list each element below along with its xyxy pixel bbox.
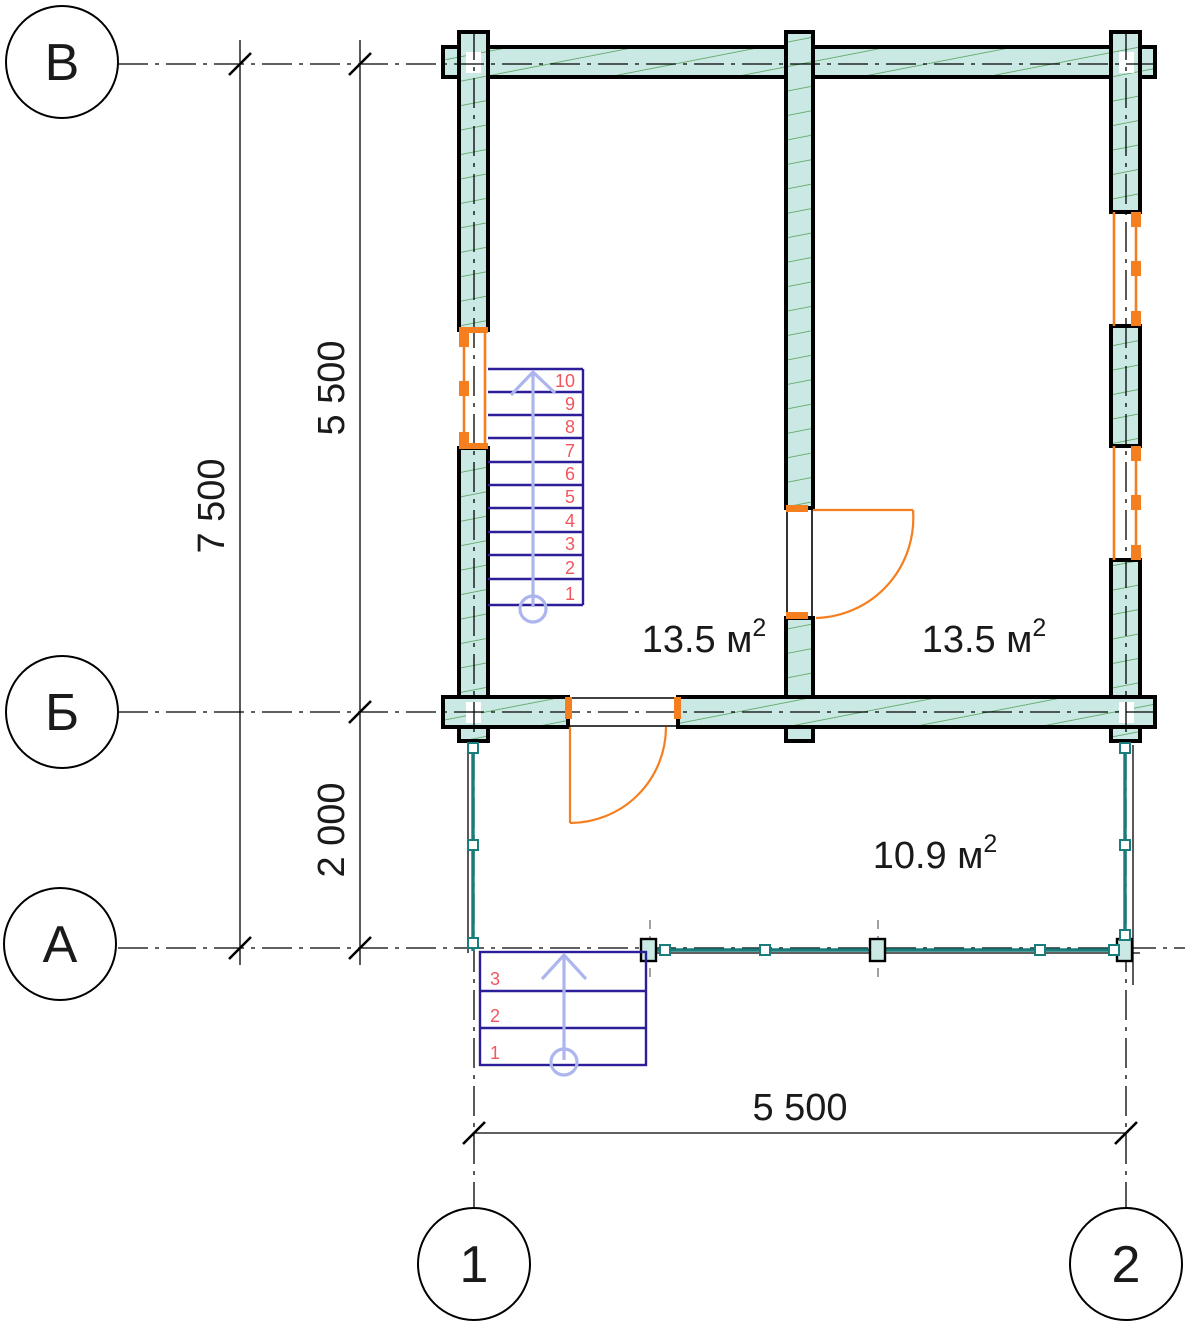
floor-plan-page: 1 2 3 4 5 6 7 8 9 10 [0,0,1191,1330]
dim-width-span: 5 500 [752,1087,847,1129]
floor-plan-drawing: 1 2 3 4 5 6 7 8 9 10 [0,0,1191,1330]
step-number: 8 [565,417,575,437]
window-right-lower [1114,446,1141,560]
dim-lower-span: 2 000 [311,782,353,877]
axis-label-A: А [43,916,78,974]
terrace-node [660,945,670,955]
stair-step-numbers: 1 2 3 4 5 6 7 8 9 10 [555,371,575,604]
room-area-right: 13.5 м2 [922,614,1047,661]
terrace-walls [468,743,1140,985]
door-interior [786,505,913,619]
window-right-upper [1114,212,1141,326]
step-number: 1 [565,584,575,604]
dimension-lines: 7 500 5 500 2 000 5 500 [191,40,1137,1144]
terrace-post [870,939,885,961]
staircase-porch: 1 2 3 [480,952,646,1075]
step-number: 10 [555,371,575,391]
terrace-node [468,840,478,850]
terrace-node [1035,945,1045,955]
step-number: 4 [565,511,575,531]
terrace-node [1120,840,1130,850]
wall-middle-upper [786,32,813,508]
dim-total-height: 7 500 [191,458,233,553]
axis-label-B: В [45,34,80,92]
door-exterior [565,697,681,823]
room-area-terrace: 10.9 м2 [873,830,998,877]
terrace-node [468,743,478,753]
step-number: 1 [490,1043,500,1063]
staircase-main: 1 2 3 4 5 6 7 8 9 10 [488,369,583,622]
axis-label-B2: Б [45,684,79,742]
step-number: 2 [565,558,575,578]
terrace-node [1120,743,1130,753]
dim-upper-span: 5 500 [311,340,353,435]
step-number: 3 [490,969,500,989]
doors [565,505,913,823]
axis-label-2: 2 [1112,1236,1141,1294]
terrace-node [1109,945,1119,955]
step-number: 7 [565,441,575,461]
terrace-node [760,945,770,955]
step-number: 3 [565,534,575,554]
room-labels: 13.5 м2 13.5 м2 10.9 м2 [642,614,1047,877]
step-number: 2 [490,1006,500,1026]
step-number: 5 [565,487,575,507]
axis-label-1: 1 [460,1236,489,1294]
terrace-post [641,939,656,961]
porch-step-numbers: 1 2 3 [490,969,500,1063]
terrace-node [468,938,478,948]
step-number: 9 [565,394,575,414]
room-area-left: 13.5 м2 [642,614,767,661]
terrace-node [1120,930,1130,940]
axis-markers: В Б А 1 2 [4,6,1182,1320]
step-number: 6 [565,464,575,484]
